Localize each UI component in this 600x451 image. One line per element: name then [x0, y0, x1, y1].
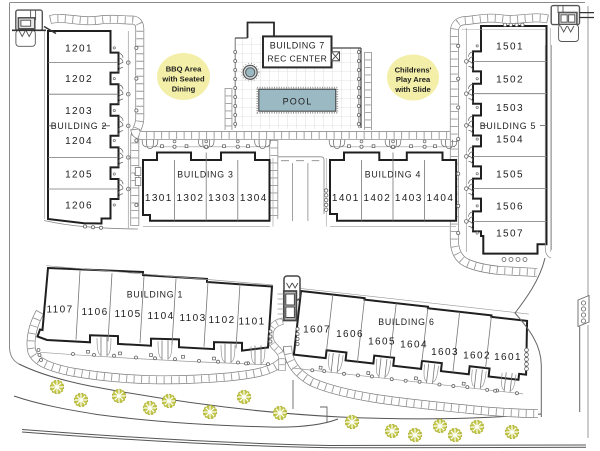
svg-text:1501: 1501 — [496, 42, 524, 53]
svg-text:1302: 1302 — [176, 193, 204, 204]
svg-text:1604: 1604 — [400, 340, 428, 351]
svg-text:1107: 1107 — [46, 305, 73, 316]
svg-text:BUILDING 1: BUILDING 1 — [127, 289, 183, 299]
svg-text:1401: 1401 — [332, 193, 360, 204]
svg-text:1202: 1202 — [65, 74, 93, 85]
svg-text:Dining: Dining — [172, 85, 196, 94]
svg-text:1506: 1506 — [496, 202, 524, 213]
svg-text:BUILDING 4: BUILDING 4 — [365, 170, 421, 180]
svg-text:Childrens': Childrens' — [395, 66, 432, 75]
svg-text:1201: 1201 — [65, 44, 93, 55]
svg-text:1503: 1503 — [496, 103, 524, 114]
svg-text:BBQ Area: BBQ Area — [166, 65, 202, 74]
svg-text:BUILDING 2: BUILDING 2 — [51, 121, 107, 131]
svg-text:POOL: POOL — [283, 96, 313, 106]
svg-text:1403: 1403 — [395, 193, 423, 204]
svg-text:1205: 1205 — [65, 170, 93, 181]
svg-text:with Seated: with Seated — [161, 75, 205, 84]
svg-text:1601: 1601 — [494, 352, 522, 363]
svg-text:1606: 1606 — [336, 329, 364, 340]
svg-text:Play Area: Play Area — [396, 75, 431, 84]
svg-text:1505: 1505 — [496, 169, 524, 180]
svg-text:1507: 1507 — [496, 229, 524, 240]
svg-text:1603: 1603 — [431, 347, 459, 358]
svg-text:BUILDING 3: BUILDING 3 — [177, 170, 233, 180]
svg-text:1404: 1404 — [426, 193, 454, 204]
svg-text:1102: 1102 — [208, 315, 235, 326]
svg-text:1203: 1203 — [65, 106, 93, 117]
svg-text:1504: 1504 — [496, 135, 524, 146]
svg-text:BUILDING 7: BUILDING 7 — [270, 41, 325, 51]
svg-text:1105: 1105 — [114, 309, 141, 320]
svg-text:1605: 1605 — [368, 337, 396, 348]
svg-text:1304: 1304 — [240, 193, 268, 204]
svg-text:1607: 1607 — [303, 325, 331, 336]
svg-text:REC CENTER: REC CENTER — [267, 54, 327, 64]
svg-text:1301: 1301 — [145, 193, 173, 204]
svg-text:with Slide: with Slide — [394, 85, 430, 94]
svg-text:1602: 1602 — [463, 351, 491, 362]
svg-text:1103: 1103 — [179, 313, 206, 324]
svg-text:1104: 1104 — [147, 311, 174, 322]
svg-text:1204: 1204 — [65, 136, 93, 147]
svg-text:1402: 1402 — [363, 193, 391, 204]
svg-text:1106: 1106 — [81, 307, 108, 318]
svg-text:1101: 1101 — [238, 317, 265, 328]
svg-text:BUILDING 6: BUILDING 6 — [378, 317, 434, 327]
svg-text:BUILDING 5: BUILDING 5 — [480, 121, 536, 131]
svg-text:1303: 1303 — [208, 193, 236, 204]
svg-text:1502: 1502 — [496, 74, 524, 85]
svg-text:1206: 1206 — [65, 201, 93, 212]
